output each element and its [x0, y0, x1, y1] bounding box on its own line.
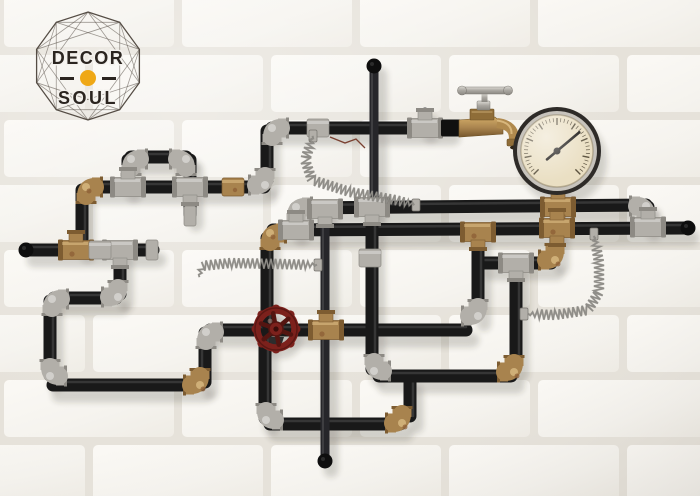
tee-highlight: [411, 120, 437, 123]
tee-highlight: [358, 199, 384, 202]
elbow-highlight: [127, 155, 135, 163]
tee-flange-right: [661, 217, 666, 238]
tee-stem-flange: [287, 210, 305, 214]
tee-flange-right: [141, 177, 146, 198]
tee-highlight: [62, 242, 88, 245]
faucet-bonnet: [477, 101, 490, 110]
silver-cap: [146, 240, 158, 260]
logo-sun-dot-icon: [80, 70, 96, 86]
tee-stem: [641, 210, 655, 219]
cap-highlight: [370, 62, 374, 66]
elbow-highlight: [182, 155, 190, 163]
tee-stem-flange: [363, 222, 381, 226]
wheel-hub-nut: [273, 326, 278, 331]
tee-highlight: [311, 201, 337, 204]
logo-dash-right: [102, 77, 116, 80]
elbow-highlight: [474, 312, 482, 320]
tee-flange-right: [571, 197, 576, 218]
black-cap: [367, 59, 382, 74]
tee-flange-right: [491, 222, 496, 243]
elbow-highlight: [262, 416, 270, 424]
rust-spot: [403, 425, 408, 430]
tee-highlight: [543, 220, 569, 223]
tee-flange-right: [529, 253, 534, 274]
elbow-highlight: [114, 293, 122, 301]
rust-spot: [69, 251, 74, 256]
scene-canvas: DECOR SOUL: [0, 0, 700, 496]
tee-stem: [418, 111, 432, 120]
handle-ball-right: [504, 86, 513, 95]
elbow-highlight: [261, 181, 269, 189]
coupling-fitting: [89, 241, 111, 259]
tee-stem: [289, 213, 303, 222]
black-cap: [681, 221, 696, 236]
tee-flange-right: [570, 218, 575, 239]
logo-dash-left: [60, 77, 74, 80]
tee-highlight: [464, 224, 490, 227]
tee-stem-flange: [639, 207, 657, 211]
tee-stem: [69, 233, 83, 242]
rust-spot: [87, 189, 92, 194]
rust-spot: [201, 387, 206, 392]
tee-stem-flange: [469, 247, 487, 251]
cap-highlight: [22, 246, 26, 250]
tee-highlight: [176, 179, 202, 182]
elbow-highlight: [268, 124, 276, 132]
rust-spot: [233, 188, 237, 192]
tee-flange-right: [339, 320, 344, 341]
tee-stem-flange: [181, 202, 199, 206]
photo-industrial-pipe-wall-decor: DECOR SOUL: [0, 0, 700, 496]
tee-highlight: [114, 179, 140, 182]
elbow-highlight: [48, 295, 56, 303]
logo-text-soul: SOUL: [58, 88, 118, 108]
rust-spot: [515, 374, 520, 379]
red-valve-handwheel: [252, 305, 301, 354]
tee-stem-flange: [67, 230, 85, 234]
gauge-glass-highlight: [521, 115, 593, 187]
tee-highlight: [282, 222, 308, 225]
rust-spot: [550, 229, 555, 234]
tee-stem-flange: [111, 265, 129, 269]
spring-clamp: [520, 308, 528, 320]
tee-flange-right: [309, 220, 314, 241]
coupling-fitting: [359, 249, 381, 267]
faucet-collar: [470, 109, 494, 120]
faucet-t-handle: [462, 87, 508, 94]
coupling-highlight: [307, 121, 329, 124]
elbow-highlight: [292, 203, 300, 211]
tee-stem-flange: [416, 108, 434, 112]
black-cap: [318, 454, 333, 469]
coupling-highlight: [222, 180, 244, 183]
rust-spot: [471, 233, 476, 238]
black-cap: [19, 243, 34, 258]
tee-stem-flange: [316, 224, 334, 228]
pressure-gauge: [513, 107, 601, 195]
elbow-highlight: [46, 372, 54, 380]
tee-stem-flange: [548, 243, 566, 247]
rust-spot: [556, 262, 561, 267]
cap-highlight: [684, 224, 688, 228]
tee-stem: [121, 170, 135, 179]
elbow-highlight: [202, 328, 210, 336]
handle-ball-left: [458, 86, 467, 95]
cap-highlight: [321, 457, 325, 461]
tee-highlight: [312, 322, 338, 325]
tee-flange-right: [338, 199, 343, 220]
coupling-highlight: [89, 243, 111, 246]
tee-highlight: [544, 199, 570, 202]
tee-flange-right: [133, 240, 138, 261]
handle-stem: [482, 93, 488, 102]
logo-text-decor: DECOR: [52, 48, 125, 68]
tee-stem-flange: [507, 278, 525, 282]
elbow-highlight: [370, 367, 378, 375]
tee-flange-right: [203, 177, 208, 198]
rust-spot: [319, 331, 324, 336]
silver-cap: [184, 206, 196, 226]
tee-stem: [319, 313, 333, 322]
wheel-highlight: [268, 319, 273, 324]
tee-stem-flange: [548, 208, 566, 212]
faucet-supply-sleeve: [441, 120, 461, 137]
tee-highlight: [502, 255, 528, 258]
tee-stem-flange: [119, 167, 137, 171]
rust-spot: [271, 235, 276, 240]
tee-stem-flange: [317, 310, 335, 314]
tee-highlight: [634, 219, 660, 222]
tee-stem: [550, 211, 564, 220]
coupling-fitting: [222, 178, 244, 196]
coupling-highlight: [359, 251, 381, 254]
